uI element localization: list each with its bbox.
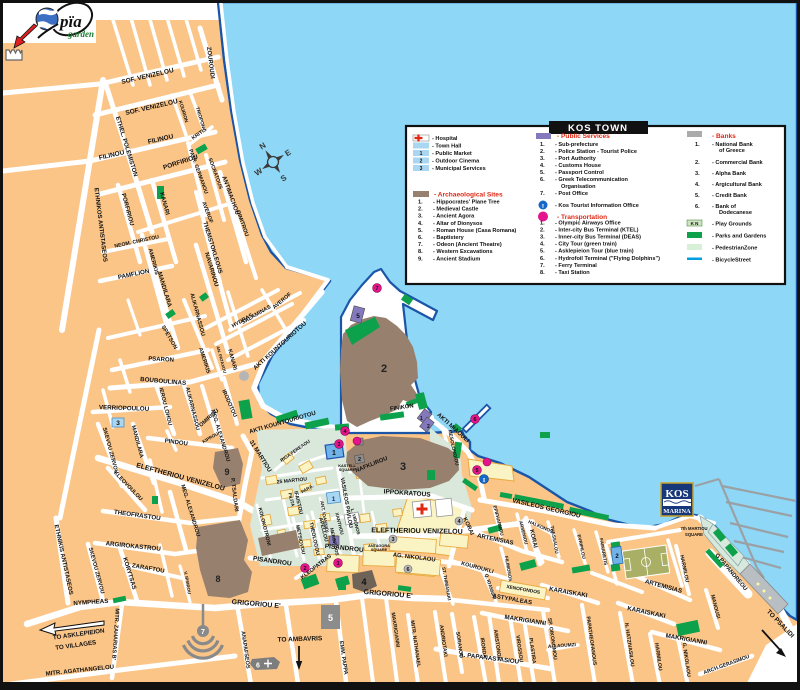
svg-text:4: 4 [361,577,366,587]
svg-text:4.: 4. [695,182,700,188]
svg-text:- Baptistery: - Baptistery [433,235,465,241]
svg-text:- Hippocrates' Plane Tree: - Hippocrates' Plane Tree [433,200,500,206]
svg-text:- Banks: - Banks [712,133,736,140]
svg-text:- Town Hall: - Town Hall [432,144,462,150]
svg-text:5.: 5. [540,170,545,176]
svg-text:5: 5 [328,613,333,623]
svg-text:- Hospital: - Hospital [432,136,458,142]
svg-text:5: 5 [356,313,360,320]
svg-text:- Public Services: - Public Services [557,133,610,140]
svg-text:I: I [542,204,544,210]
svg-text:7.: 7. [540,263,545,269]
svg-text:1: 1 [420,416,423,422]
svg-text:- Altar of Dionysos: - Altar of Dionysos [433,221,483,227]
svg-text:- Customs House: - Customs House [555,163,601,169]
svg-text:2.: 2. [418,207,423,213]
svg-text:- BicycleStreet: - BicycleStreet [712,258,751,264]
svg-text:K N: K N [691,221,699,226]
svg-text:1: 1 [336,561,339,567]
svg-text:- Archaeological Sites: - Archaeological Sites [434,192,503,199]
svg-text:1.: 1. [540,142,545,148]
svg-text:8.: 8. [418,249,423,255]
svg-text:Organisation: Organisation [561,184,596,190]
svg-text:2: 2 [427,424,430,430]
svg-text:- Alpha Bank: - Alpha Bank [712,171,747,177]
svg-text:- City Tour (green train): - City Tour (green train) [555,242,617,248]
svg-text:- Western Excavations: - Western Excavations [433,249,493,255]
svg-text:2: 2 [358,457,361,463]
svg-text:SQUARE: SQUARE [685,532,703,537]
svg-text:- Asklepieion Tour (blue train: - Asklepieion Tour (blue train) [555,249,634,255]
svg-text:- Taxi Station: - Taxi Station [555,270,590,276]
svg-text:- Police Station - Tourist Pol: - Police Station - Tourist Police [555,149,637,155]
svg-text:3: 3 [420,166,423,172]
svg-text:1: 1 [332,450,336,457]
svg-text:8.: 8. [540,270,545,276]
svg-text:SQUARE: SQUARE [371,548,388,552]
svg-text:3: 3 [116,420,120,427]
svg-text:- Ancient Agora: - Ancient Agora [433,214,475,220]
svg-text:7.: 7. [540,191,545,197]
svg-text:- Credit Bank: - Credit Bank [712,193,748,199]
svg-text:- Odeon (Ancient Theatre): - Odeon (Ancient Theatre) [433,242,502,248]
svg-text:SQUARE: SQUARE [339,468,356,472]
svg-text:7: 7 [375,286,378,292]
svg-text:of Greece: of Greece [719,148,745,154]
svg-text:7.: 7. [418,242,423,248]
svg-text:3.: 3. [695,171,700,177]
svg-text:6: 6 [256,663,260,670]
svg-text:6: 6 [406,567,409,573]
svg-text:- PedestrianZone: - PedestrianZone [712,246,757,252]
svg-text:2.: 2. [540,149,545,155]
svg-text:1.: 1. [695,142,700,148]
svg-text:2: 2 [420,159,423,165]
svg-text:- Argicultural Bank: - Argicultural Bank [712,182,763,188]
svg-text:- Ferry Terminal: - Ferry Terminal [555,263,597,269]
svg-text:1: 1 [332,496,336,503]
svg-text:garden: garden [67,29,94,39]
svg-text:- Roman House (Casa Romana): - Roman House (Casa Romana) [433,228,516,234]
svg-text:KOS: KOS [665,488,688,500]
svg-text:4.: 4. [540,242,545,248]
svg-text:1.: 1. [418,200,423,206]
svg-text:5: 5 [475,468,478,474]
svg-text:3.: 3. [418,214,423,220]
svg-text:7: 7 [201,629,205,636]
svg-text:1: 1 [420,151,423,157]
svg-text:3: 3 [337,442,340,448]
svg-text:3.: 3. [540,156,545,162]
svg-text:4.: 4. [418,221,423,227]
svg-text:- Inner-city Bus Terminal (DEA: - Inner-city Bus Terminal (DEAS) [555,235,641,241]
svg-text:1.: 1. [540,221,545,227]
svg-text:- Municipal Services: - Municipal Services [432,166,486,172]
svg-text:4.: 4. [540,163,545,169]
svg-text:5.: 5. [540,249,545,255]
svg-text:- Passport Control: - Passport Control [555,170,604,176]
svg-text:- Medieval Castle: - Medieval Castle [433,207,478,213]
svg-text:6.: 6. [695,204,700,210]
svg-text:Dodecanese: Dodecanese [719,210,752,216]
svg-text:8: 8 [215,574,220,584]
svg-text:7th MARTIOU: 7th MARTIOU [681,526,708,531]
svg-text:5.: 5. [695,193,700,199]
svg-text:5.: 5. [418,228,423,234]
svg-text:3.: 3. [540,235,545,241]
svg-text:3: 3 [400,461,406,473]
svg-text:6.: 6. [540,256,545,262]
svg-text:- Port Authority: - Port Authority [555,156,597,162]
svg-text:MARINA: MARINA [663,508,691,515]
svg-text:- Outdoor Cinema: - Outdoor Cinema [432,159,480,165]
svg-text:- Inter-city Bus Terminal (KTE: - Inter-city Bus Terminal (KTEL) [555,228,639,234]
svg-text:2: 2 [381,363,387,375]
svg-text:3: 3 [391,537,394,543]
svg-text:- Olympic Airways Office: - Olympic Airways Office [555,221,621,227]
svg-text:- Sub-prefecture: - Sub-prefecture [555,142,598,148]
svg-text:- Hydrofoil Terminal ("Flying: - Hydrofoil Terminal ("Flying Dolphins") [555,256,660,262]
svg-text:6.: 6. [418,235,423,241]
svg-text:- Parks and Gardens: - Parks and Gardens [712,234,766,240]
svg-text:2.: 2. [540,228,545,234]
svg-text:- Ancient Stadium: - Ancient Stadium [433,256,480,262]
svg-text:- Kos Tourist Information Offi: - Kos Tourist Information Office [555,203,639,209]
svg-text:9.: 9. [418,256,423,262]
svg-text:6: 6 [473,417,476,423]
svg-text:- Play Grounds: - Play Grounds [712,222,752,228]
svg-text:6.: 6. [540,177,545,183]
svg-text:- Post Office: - Post Office [555,191,588,197]
svg-text:9: 9 [224,467,229,477]
svg-text:- Greek Telecommunication: - Greek Telecommunication [555,177,629,183]
svg-text:- Public Market: - Public Market [432,151,472,157]
svg-text:2.: 2. [695,160,700,166]
svg-text:- Commercial Bank: - Commercial Bank [712,160,764,166]
